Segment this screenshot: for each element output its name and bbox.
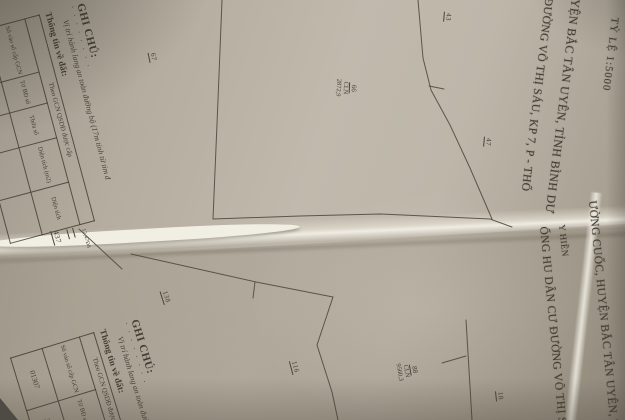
boundary-tick-mark [429,86,444,89]
parcel-number-18: 18 [495,391,505,402]
parcel-number-43: 43 [443,12,453,23]
parcel-66-number: 66 [349,83,359,94]
parcel-116-tick-mark [253,282,255,298]
parcel-number-116: 116 [289,359,301,375]
parcel-number-138: 138 [160,289,173,305]
parcel-66-area: 2872,9 [334,79,342,97]
parcel-66-right-boundary [418,0,492,219]
parcel-66-label: 66 CLN 2872,9 [334,79,359,98]
parcel-88-label: 88 CLN 9560,3 [394,360,420,381]
parcel-116-right-boundary [317,297,338,420]
scale-label: TỶ LỆ 1:5000 [600,17,620,92]
parcel-number-47: 47 [483,137,493,148]
parcel-66-left-boundary [213,0,222,219]
bottom-sheet-note-block: GHI CHÚ: · · · · · · · · Vị trí hành lan… [10,318,213,420]
parcel-number-67: 67 [148,51,159,63]
map-frame-corner-line [442,356,466,363]
parcel-66-land-type: CLN [341,79,349,97]
map-frame-vertical-line [466,320,472,420]
document-photo: TỶ LỆ 1:5000 HUYỆN BẮC TÂN UYÊN, TỈNH BÌ… [0,0,625,420]
